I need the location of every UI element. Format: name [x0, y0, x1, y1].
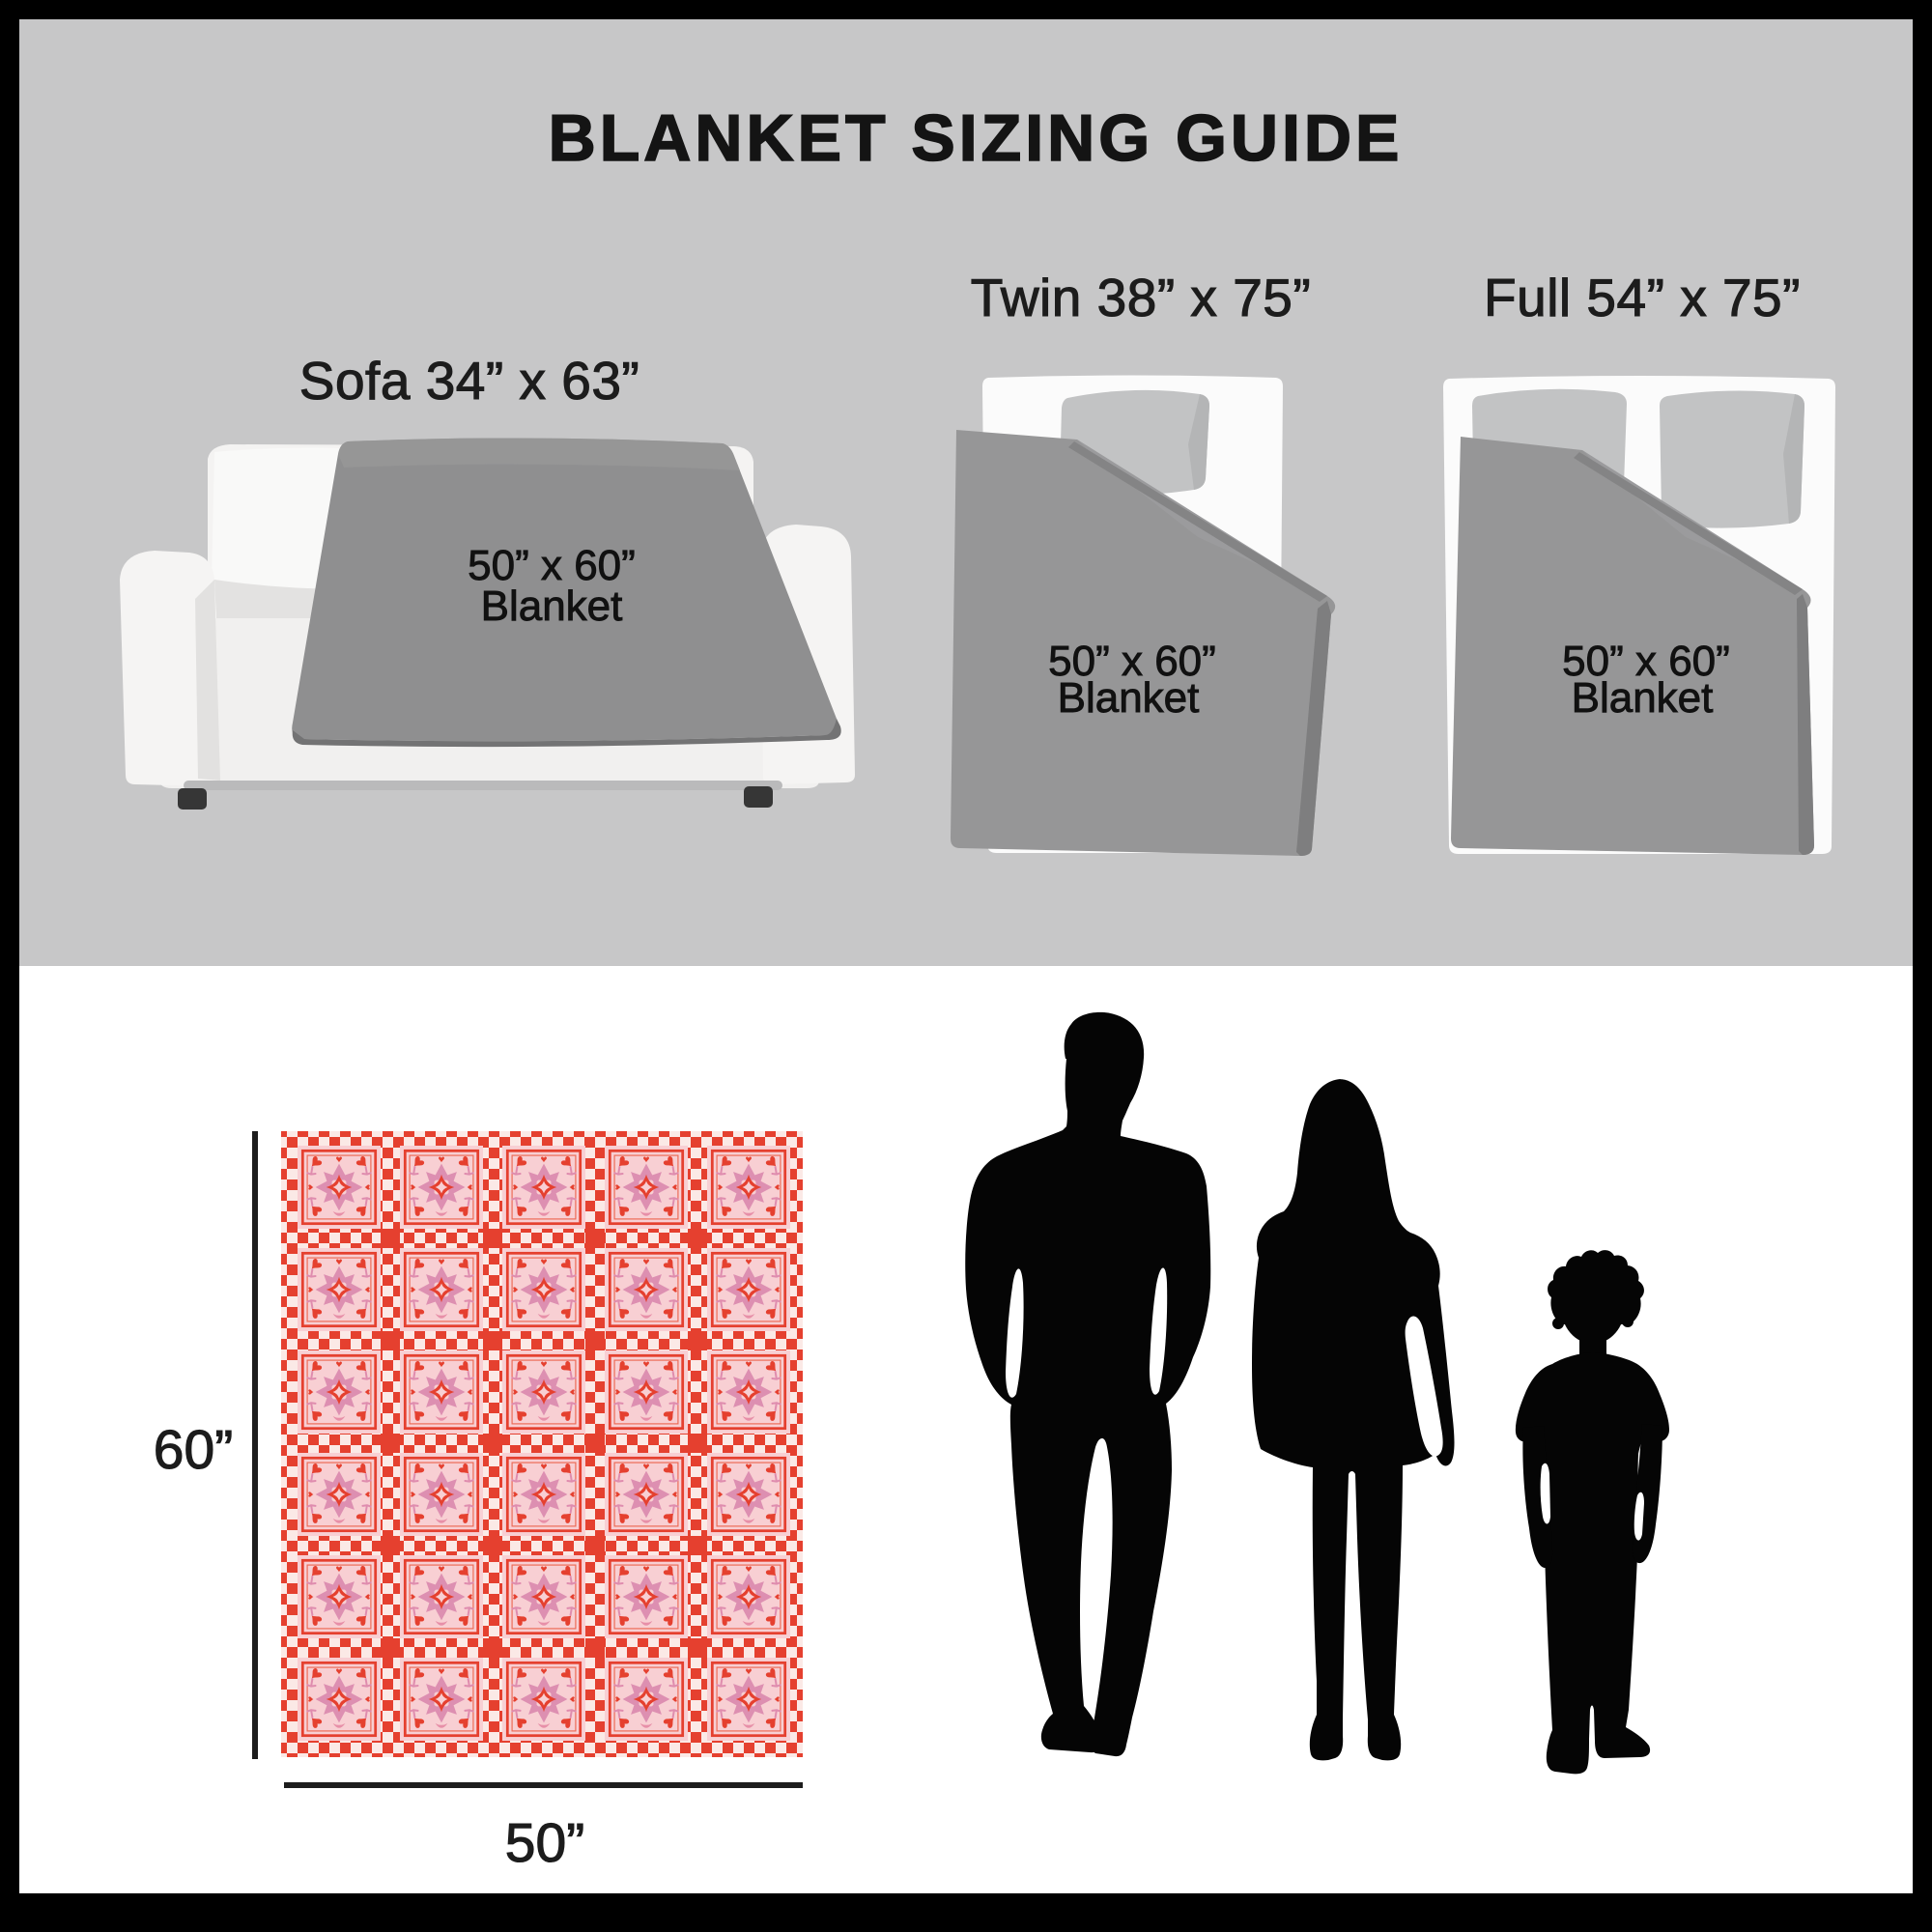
svg-text:Blanket: Blanket: [1572, 674, 1714, 722]
svg-text:Sofa 34” x 63”: Sofa 34” x 63”: [299, 351, 639, 411]
svg-text:BLANKET SIZING GUIDE: BLANKET SIZING GUIDE: [549, 101, 1404, 175]
svg-text:Blanket: Blanket: [481, 582, 623, 630]
svg-text:Blanket: Blanket: [1058, 674, 1200, 722]
svg-text:60”: 60”: [154, 1419, 233, 1481]
svg-text:Twin 38” x 75”: Twin 38” x 75”: [971, 268, 1311, 327]
svg-text:50”: 50”: [505, 1812, 584, 1874]
svg-text:Full 54” x 75”: Full 54” x 75”: [1484, 268, 1801, 327]
